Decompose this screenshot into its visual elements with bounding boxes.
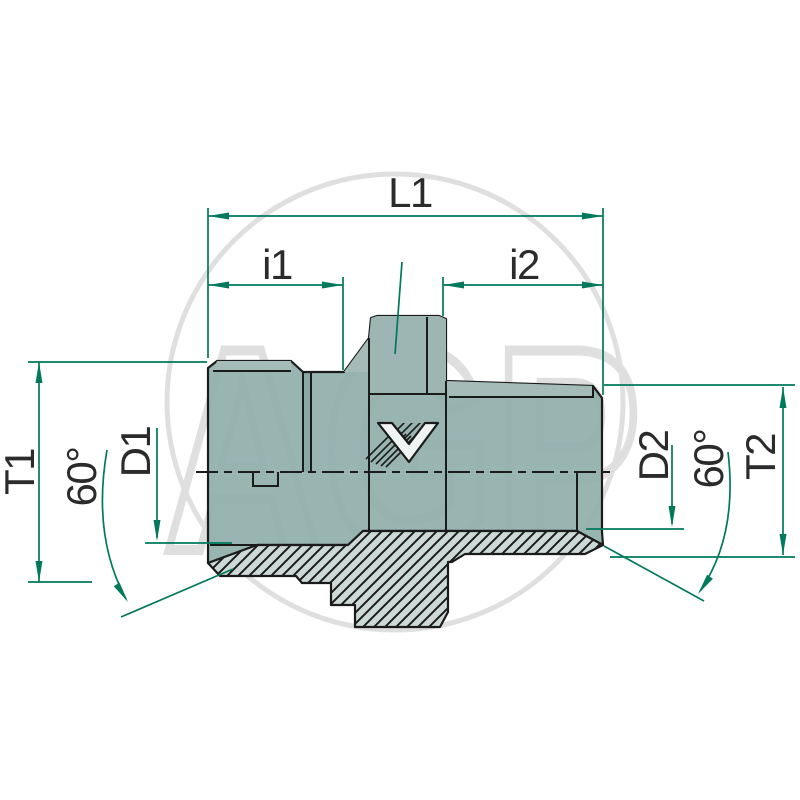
hex-nut-upper-face <box>369 316 446 394</box>
dim-label-i1: i1 <box>262 241 292 288</box>
dim-label-d2: D2 <box>630 431 677 482</box>
fitting-dimension-drawing: AGP <box>0 0 800 800</box>
dim-label-i2: i2 <box>509 241 539 288</box>
dim-label-t1: T1 <box>0 449 43 495</box>
dim-label-angle-left: 60° <box>58 447 105 506</box>
dim-label-angle-right: 60° <box>685 429 732 488</box>
left-thread-top-face <box>213 361 291 371</box>
dim-label-d1: D1 <box>112 427 159 478</box>
technical-drawing-page: AGP <box>0 0 800 800</box>
thread-relief-groove <box>303 372 311 472</box>
dim-label-l1: L1 <box>388 169 432 216</box>
dim-label-t2: T2 <box>737 434 784 480</box>
